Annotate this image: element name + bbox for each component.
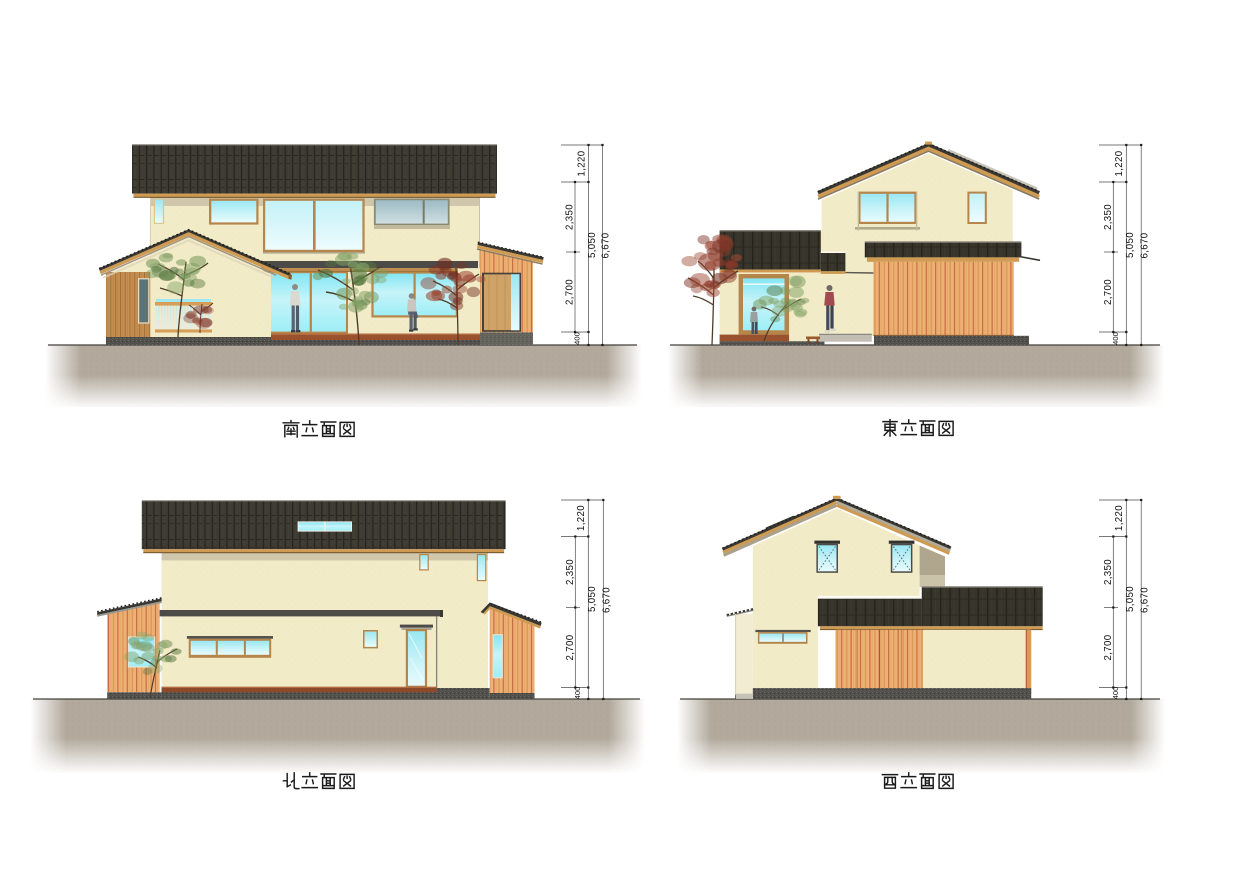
svg-text:400: 400 xyxy=(1111,332,1120,345)
svg-text:2,700: 2,700 xyxy=(1103,634,1114,660)
svg-text:1,220: 1,220 xyxy=(576,505,587,531)
svg-text:1,220: 1,220 xyxy=(576,150,587,176)
svg-text:5,050: 5,050 xyxy=(587,586,598,612)
svg-text:2,700: 2,700 xyxy=(565,634,576,660)
svg-text:2,350: 2,350 xyxy=(565,559,576,585)
svg-text:6,670: 6,670 xyxy=(1139,232,1150,258)
svg-text:2,350: 2,350 xyxy=(1103,204,1114,230)
svg-text:400: 400 xyxy=(573,687,582,700)
svg-text:1,220: 1,220 xyxy=(1114,505,1125,531)
svg-text:6,670: 6,670 xyxy=(601,587,612,613)
svg-text:2,700: 2,700 xyxy=(565,279,576,305)
svg-text:2,350: 2,350 xyxy=(1103,559,1114,585)
svg-text:5,050: 5,050 xyxy=(587,232,598,258)
svg-text:6,670: 6,670 xyxy=(601,232,612,258)
svg-text:2,350: 2,350 xyxy=(565,204,576,230)
svg-text:400: 400 xyxy=(1111,687,1120,700)
svg-text:5,050: 5,050 xyxy=(1125,232,1136,258)
svg-text:6,670: 6,670 xyxy=(1139,587,1150,613)
svg-text:2,700: 2,700 xyxy=(1103,279,1114,305)
svg-text:1,220: 1,220 xyxy=(1114,150,1125,176)
svg-text:5,050: 5,050 xyxy=(1125,586,1136,612)
svg-text:400: 400 xyxy=(573,332,582,345)
